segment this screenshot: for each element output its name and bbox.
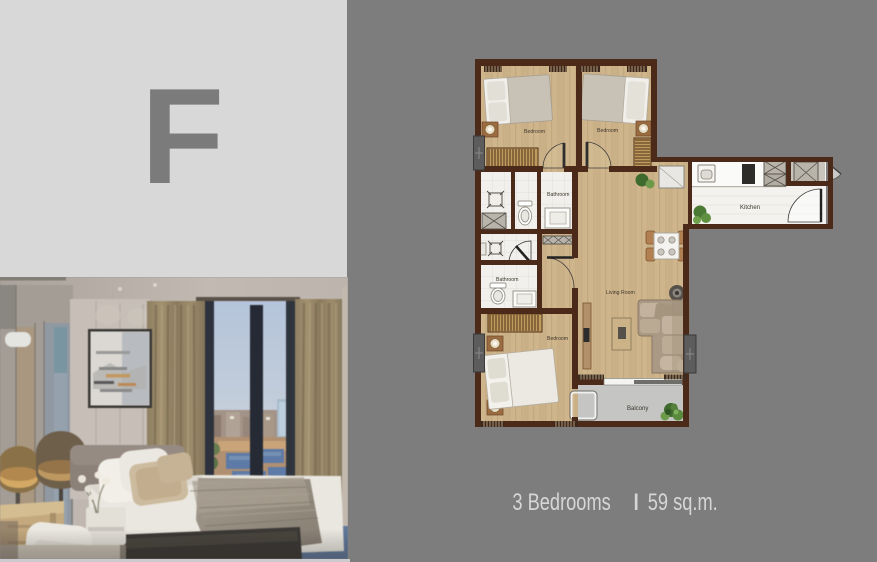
svg-text:Bedroom: Bedroom [597, 128, 618, 134]
svg-text:Bedroom: Bedroom [547, 336, 568, 342]
svg-text:Bedroom: Bedroom [524, 129, 545, 135]
svg-text:Bathroom: Bathroom [547, 192, 570, 198]
svg-text:Balcony: Balcony [627, 406, 648, 412]
svg-text:Bathroom: Bathroom [496, 277, 519, 283]
svg-text:Living Room: Living Room [606, 290, 635, 296]
svg-text:Kitchen: Kitchen [740, 205, 760, 211]
